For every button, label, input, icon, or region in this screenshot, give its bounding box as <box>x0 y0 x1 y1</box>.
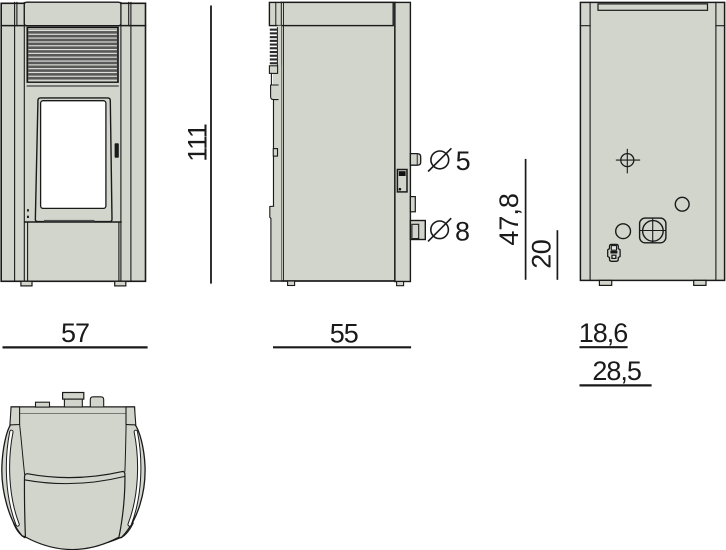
svg-text:47,8: 47,8 <box>494 193 524 246</box>
svg-text:57: 57 <box>61 318 89 348</box>
svg-text:20: 20 <box>527 240 557 269</box>
svg-text:28,5: 28,5 <box>592 356 641 386</box>
svg-text:18,6: 18,6 <box>579 318 628 348</box>
svg-text:5: 5 <box>456 146 471 176</box>
svg-text:111: 111 <box>183 124 213 162</box>
svg-text:8: 8 <box>455 217 470 247</box>
svg-text:55: 55 <box>330 319 358 349</box>
